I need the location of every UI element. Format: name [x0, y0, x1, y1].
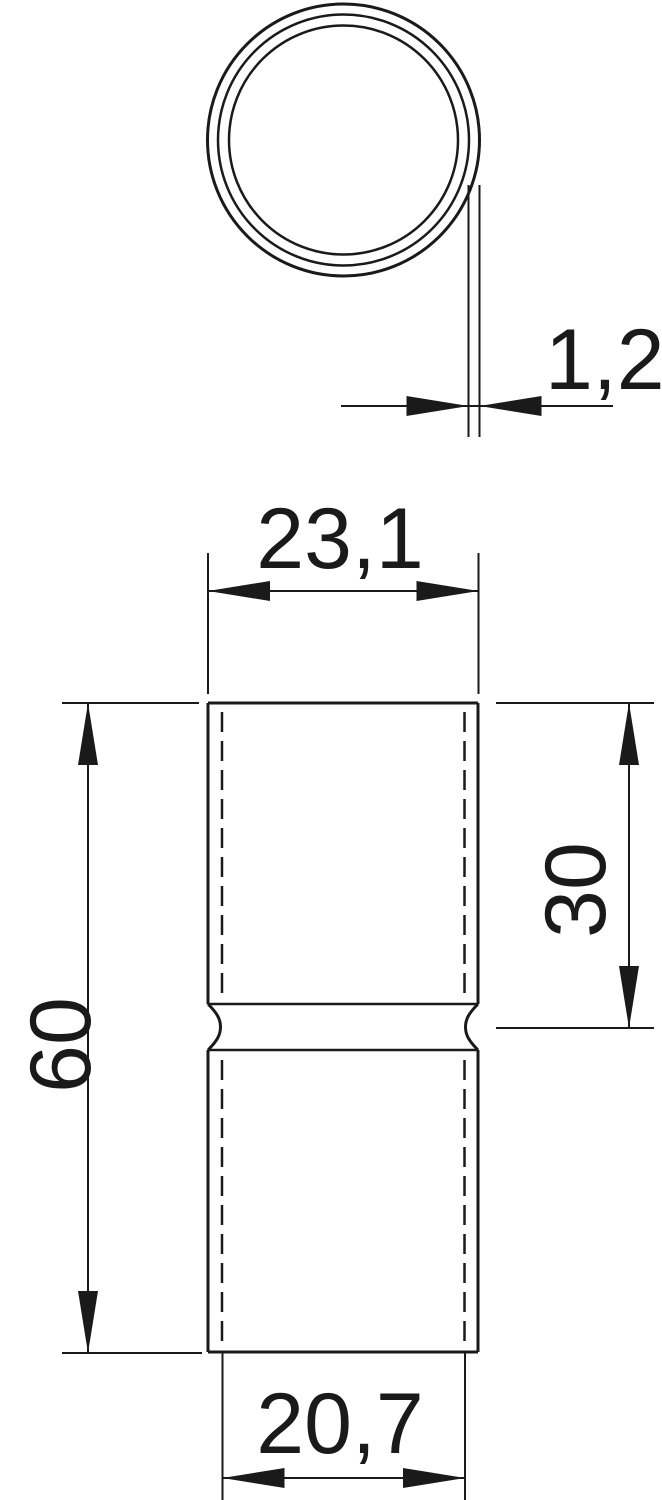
bore-circle	[229, 26, 458, 255]
drawing-canvas: 1,2 23,1	[0, 0, 662, 1500]
arrowhead	[619, 966, 639, 1028]
dimension-text-overall-length: 60	[13, 997, 109, 1093]
technical-drawing: 1,2 23,1	[0, 0, 662, 1500]
outer-diameter-circle	[208, 4, 480, 276]
front-view-body	[208, 703, 478, 1352]
dimension-overall-length: 60	[13, 703, 202, 1353]
dimension-text-inner-width: 20,7	[256, 1376, 423, 1472]
arrowhead	[417, 581, 479, 601]
dimension-text-upper-section: 30	[528, 842, 624, 938]
dimension-upper-section: 30	[496, 703, 654, 1028]
arrowhead	[480, 396, 542, 416]
arrowhead	[78, 703, 98, 765]
dimension-wall-thickness: 1,2	[341, 185, 662, 437]
groove-arc-right	[466, 1004, 479, 1050]
dimension-text-wall-thickness: 1,2	[545, 312, 662, 408]
dimension-outer-width: 23,1	[208, 491, 479, 694]
arrowhead	[619, 703, 639, 765]
top-view-cross-section	[208, 4, 480, 276]
groove-arc-left	[208, 1004, 221, 1050]
dimension-text-outer-width: 23,1	[256, 491, 423, 587]
arrowhead	[407, 396, 469, 416]
arrowhead	[78, 1291, 98, 1353]
wall-inner-circle	[218, 15, 469, 266]
dimension-inner-width: 20,7	[223, 1353, 466, 1500]
